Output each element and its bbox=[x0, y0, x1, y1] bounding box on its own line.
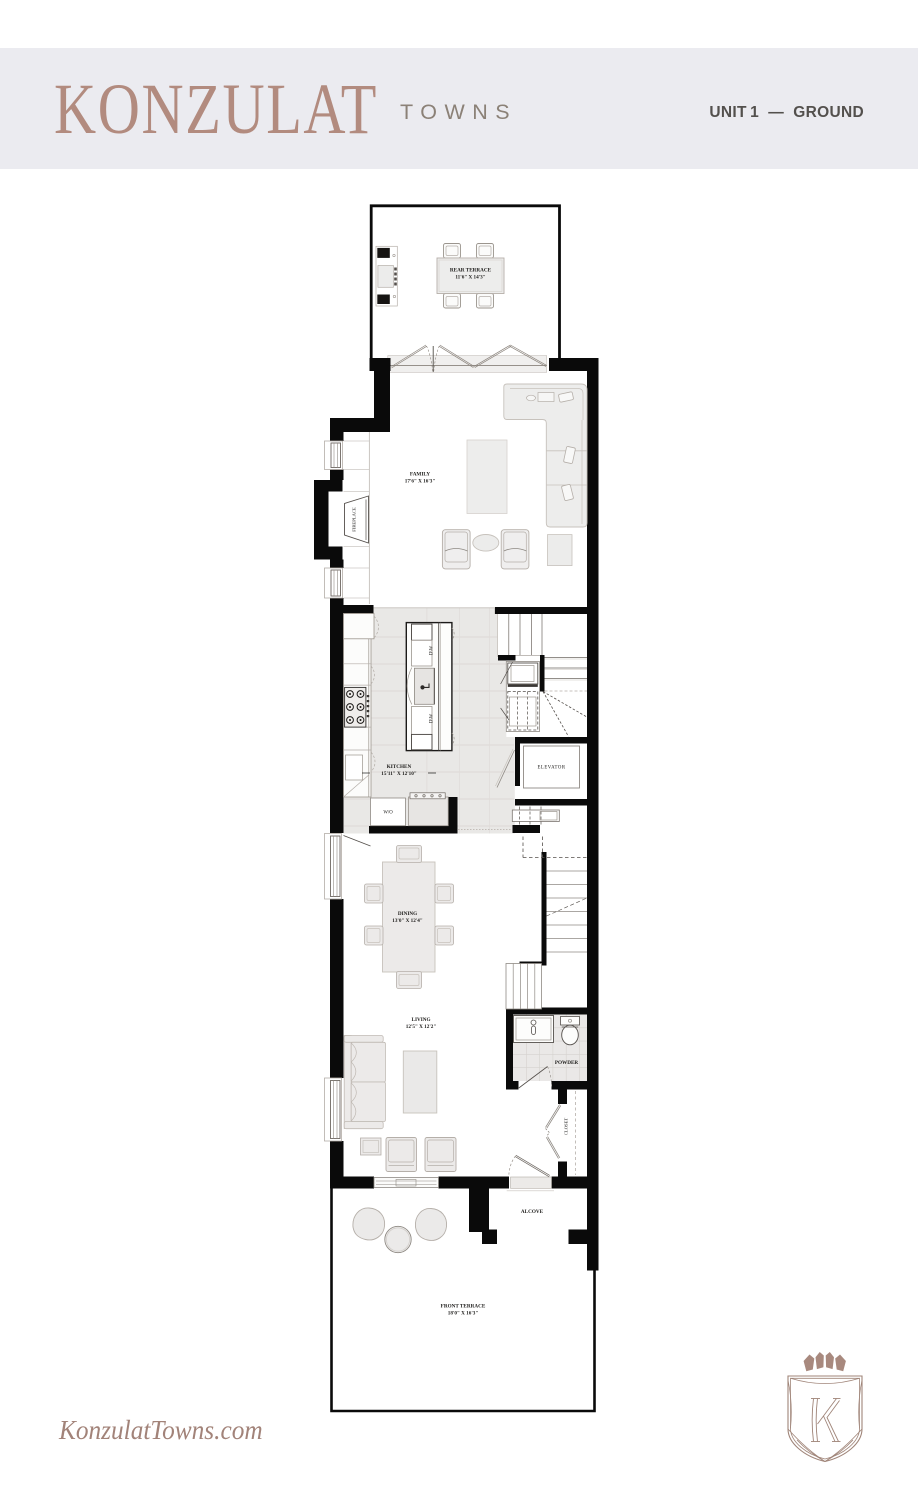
svg-text:KITCHEN: KITCHEN bbox=[387, 764, 412, 770]
svg-text:ALCOVE: ALCOVE bbox=[521, 1209, 544, 1215]
svg-text:FRONT TERRACE: FRONT TERRACE bbox=[441, 1304, 486, 1310]
svg-text:LIVING: LIVING bbox=[411, 1017, 430, 1023]
svg-text:12'5" X 12'2": 12'5" X 12'2" bbox=[406, 1024, 437, 1030]
svg-text:CLOSET: CLOSET bbox=[564, 1118, 569, 1136]
svg-text:REAR TERRACE: REAR TERRACE bbox=[450, 268, 492, 274]
svg-text:FAMILY: FAMILY bbox=[410, 472, 430, 478]
svg-text:18'0" X 16'3": 18'0" X 16'3" bbox=[448, 1311, 479, 1317]
svg-text:17'6" X 16'3": 17'6" X 16'3" bbox=[405, 479, 436, 485]
svg-text:11'6" X 14'3": 11'6" X 14'3" bbox=[455, 275, 485, 281]
svg-text:15'11" X 12'10": 15'11" X 12'10" bbox=[381, 771, 417, 777]
svg-text:D\W: D\W bbox=[430, 713, 435, 723]
svg-text:W/O: W/O bbox=[383, 811, 393, 816]
svg-text:POWDER: POWDER bbox=[555, 1060, 579, 1066]
svg-text:13'0" X 12'4": 13'0" X 12'4" bbox=[392, 918, 423, 924]
svg-text:DINING: DINING bbox=[398, 911, 417, 917]
svg-text:FIREPLACE: FIREPLACE bbox=[352, 507, 357, 532]
svg-text:ELEVATOR: ELEVATOR bbox=[537, 766, 565, 771]
svg-text:D\W: D\W bbox=[430, 645, 435, 655]
